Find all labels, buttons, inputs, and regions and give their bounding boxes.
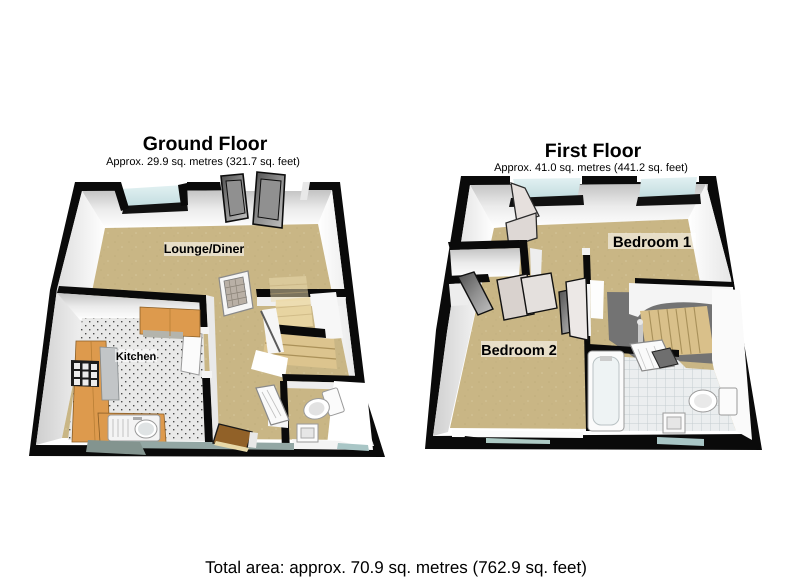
svg-text:First Floor: First Floor (545, 140, 642, 162)
svg-text:Bedroom 1: Bedroom 1 (613, 234, 691, 251)
svg-text:Approx. 41.0 sq. metres (441.2: Approx. 41.0 sq. metres (441.2 sq. feet) (494, 162, 688, 174)
svg-text:Lounge/Diner: Lounge/Diner (164, 242, 245, 256)
svg-text:Kitchen: Kitchen (116, 351, 157, 363)
svg-text:Bedroom 2: Bedroom 2 (481, 343, 557, 359)
svg-text:Total area: approx. 70.9 sq. m: Total area: approx. 70.9 sq. metres (762… (205, 558, 587, 577)
svg-text:Approx. 29.9 sq. metres (321.7: Approx. 29.9 sq. metres (321.7 sq. feet) (106, 156, 300, 168)
svg-text:Ground Floor: Ground Floor (143, 133, 268, 155)
